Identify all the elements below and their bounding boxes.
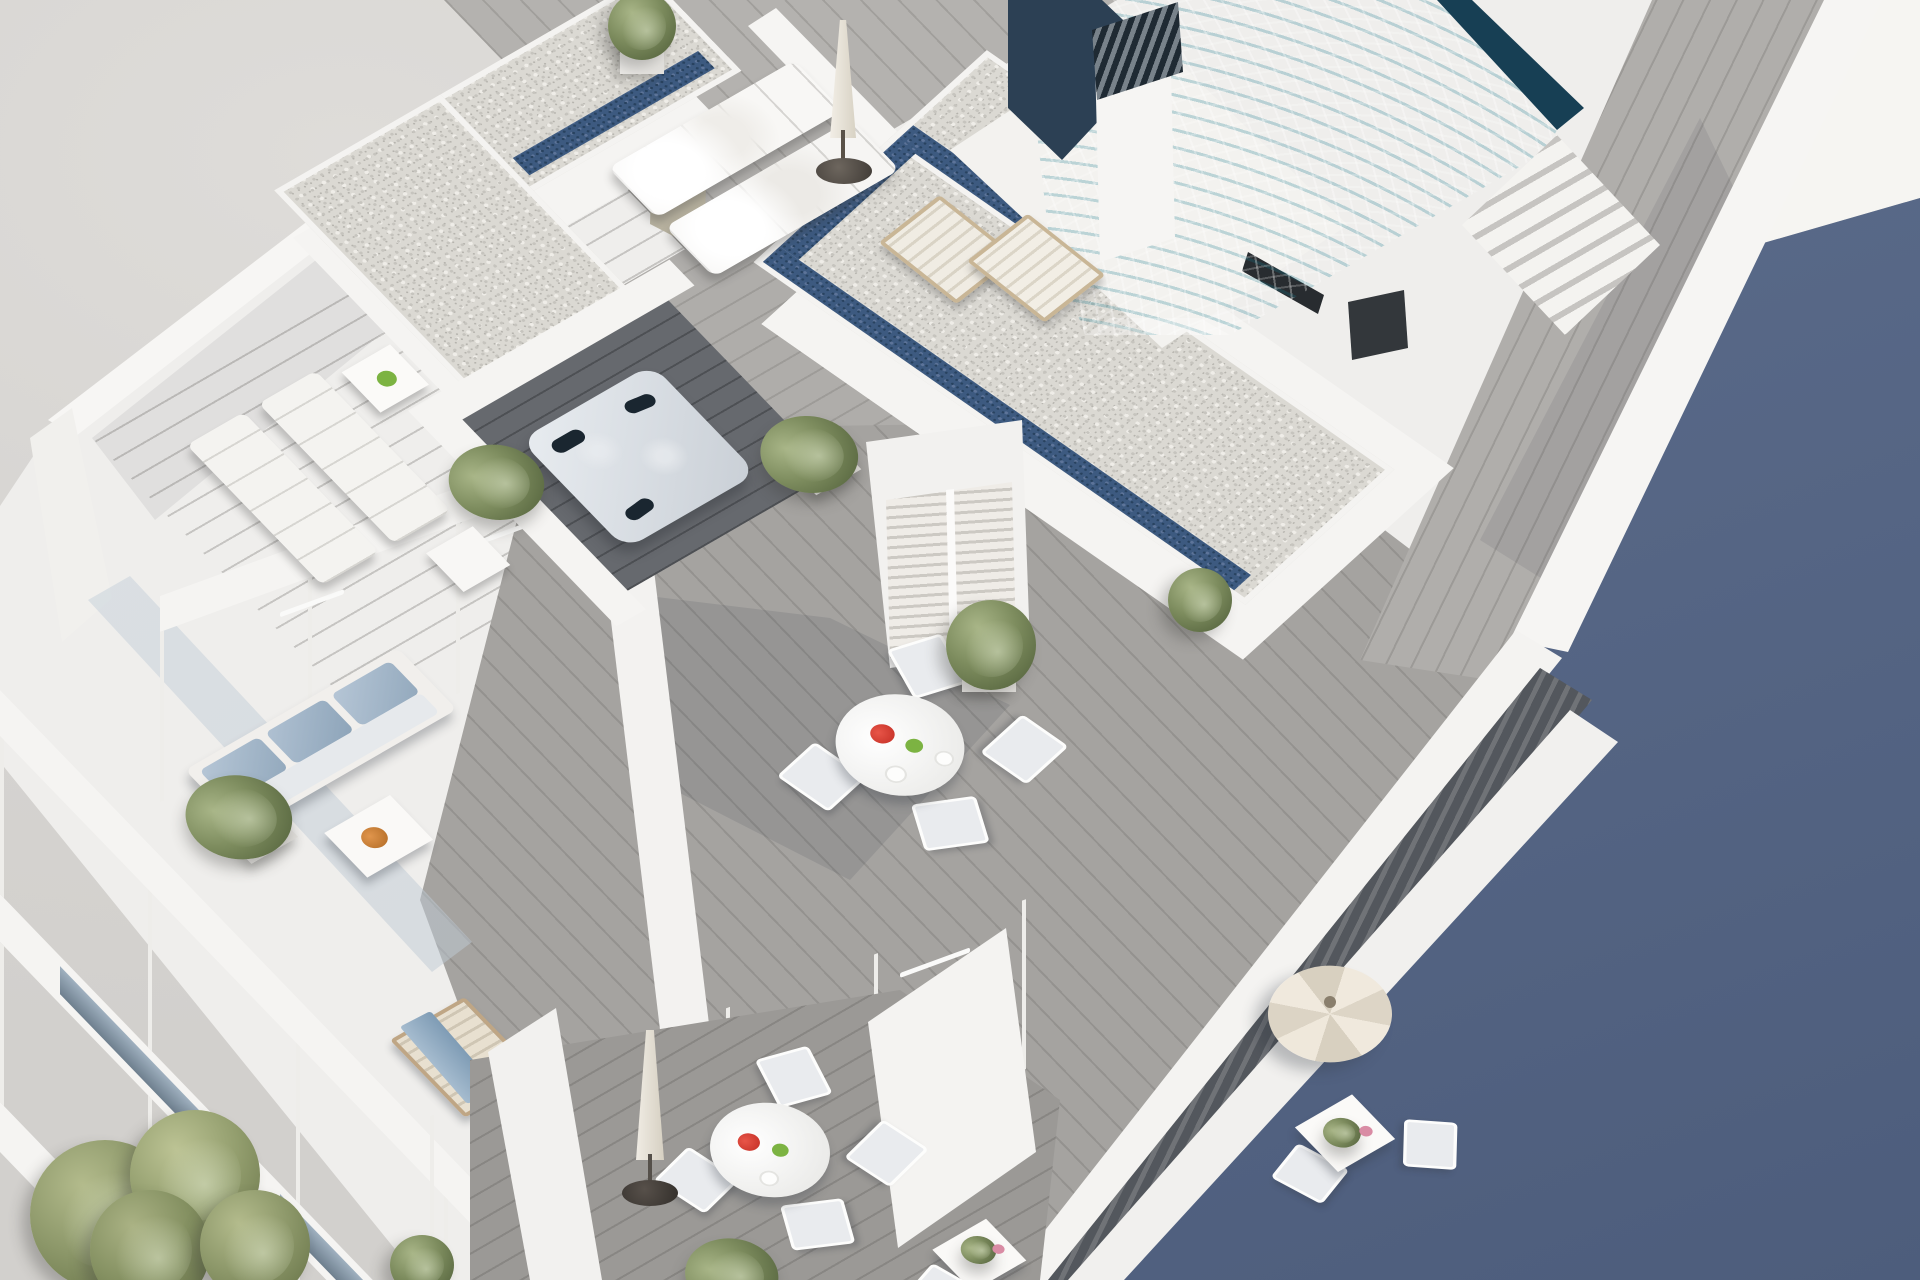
umbrella-base: [816, 158, 872, 184]
dining-chair: [911, 796, 990, 852]
umbrella-center: [1324, 996, 1336, 1008]
rooftop-render-scene: [0, 0, 1920, 1280]
shrub: [946, 600, 1036, 690]
tree-canopy: [20, 1080, 340, 1280]
bistro-chair: [1403, 1119, 1458, 1170]
closed-umbrella: [800, 20, 890, 190]
umbrella-canopy-folded: [830, 20, 856, 138]
dining-chair: [780, 1198, 856, 1251]
umbrella-canopy-open: [1255, 955, 1405, 1072]
umbrella-canopy-folded: [636, 1030, 664, 1160]
shrub-partial: [1168, 568, 1232, 632]
closed-umbrella: [608, 1030, 698, 1210]
umbrella-base: [622, 1180, 678, 1206]
open-umbrella-cream: [1268, 952, 1392, 1062]
